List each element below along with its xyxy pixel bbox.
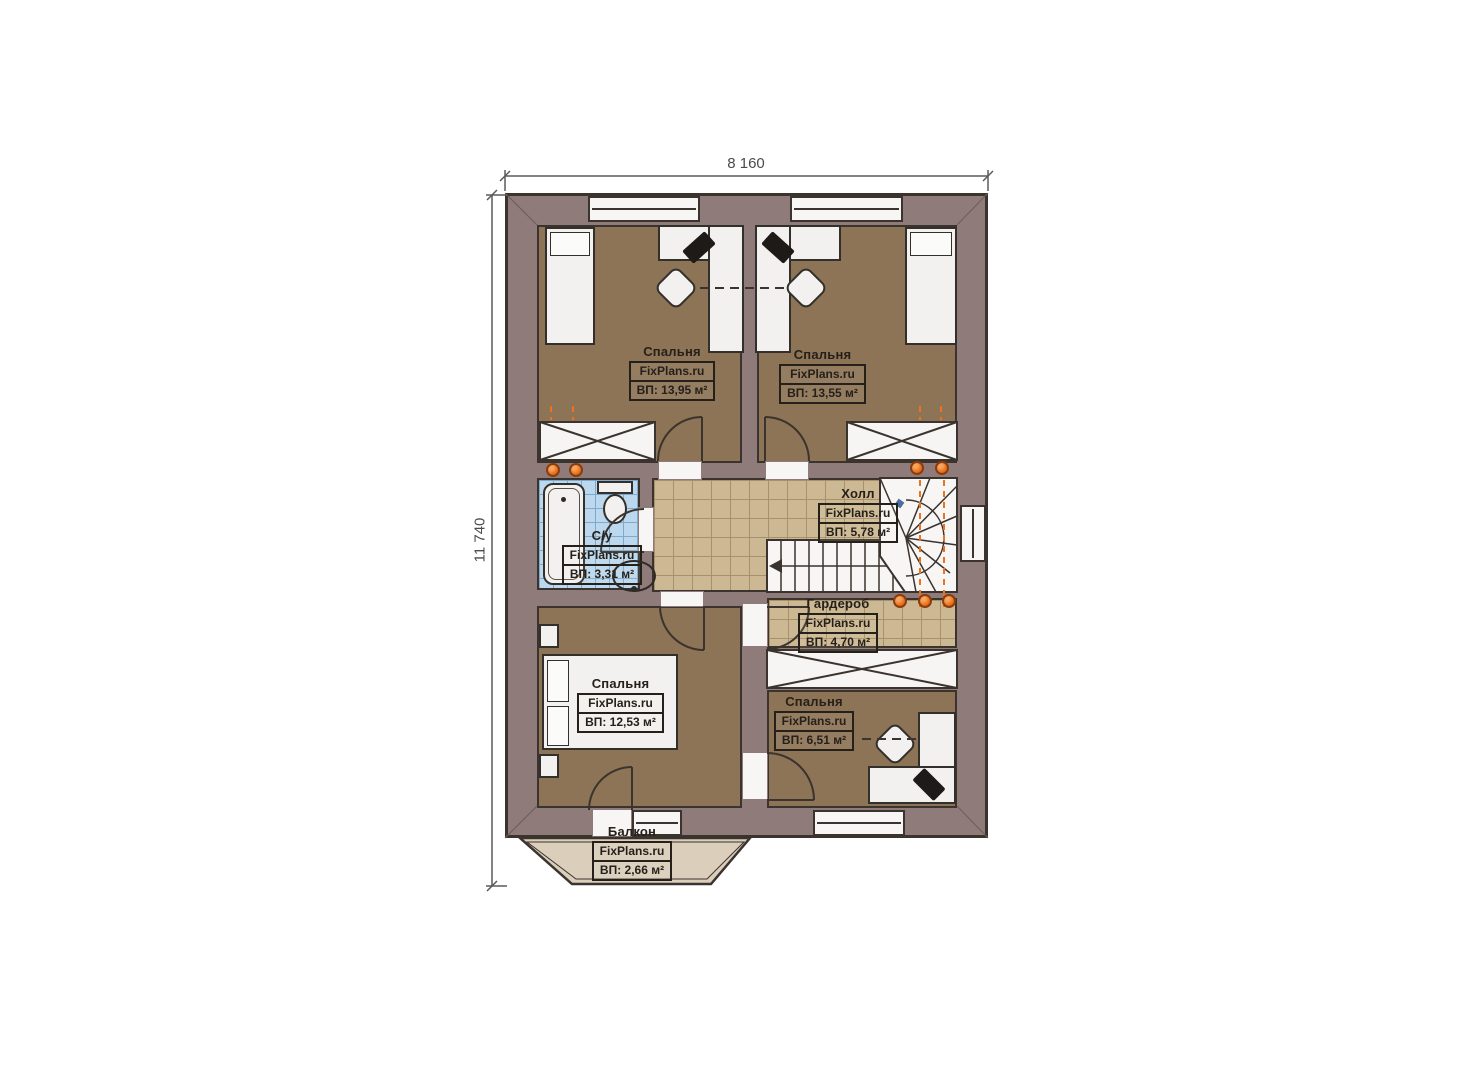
brand-watermark: FixPlans.ru bbox=[631, 363, 714, 380]
brand-watermark: FixPlans.ru bbox=[776, 713, 853, 730]
door-gap-bedroom-top-right bbox=[765, 461, 809, 480]
room-area: ВП: 2,66 м² bbox=[594, 860, 671, 879]
ceiling-lamp-icon bbox=[918, 594, 932, 608]
window-bottom-right bbox=[813, 810, 905, 836]
brand-watermark: FixPlans.ru bbox=[820, 505, 897, 522]
bed-pillow bbox=[547, 660, 569, 702]
label-bedroom-top-right: Спальня FixPlans.ru ВП: 13,55 м² bbox=[760, 347, 885, 404]
door-gap-bedroom-bottom-left bbox=[660, 591, 704, 607]
room-name: Спальня bbox=[760, 347, 885, 362]
brand-watermark: FixPlans.ru bbox=[579, 695, 662, 712]
toilet-icon bbox=[603, 494, 627, 524]
brand-watermark: FixPlans.ru bbox=[800, 615, 877, 632]
nightstand bbox=[539, 754, 559, 778]
desk bbox=[868, 766, 956, 804]
room-name: Гардероб bbox=[793, 596, 883, 611]
room-name: Балкон bbox=[582, 824, 682, 839]
door-gap-bedroom-top-left bbox=[658, 461, 702, 480]
ceiling-lamp-icon bbox=[910, 461, 924, 475]
ceiling-lamp-icon bbox=[935, 461, 949, 475]
ceiling-lamp-icon bbox=[569, 463, 583, 477]
bed-pillow bbox=[550, 232, 590, 256]
label-wardrobe: Гардероб FixPlans.ru ВП: 4,70 м² bbox=[793, 596, 883, 653]
label-bedroom-bottom-right: Спальня FixPlans.ru ВП: 6,51 м² bbox=[766, 694, 862, 751]
room-area: ВП: 13,55 м² bbox=[781, 383, 864, 402]
brand-watermark: FixPlans.ru bbox=[594, 843, 671, 860]
room-name: С/у bbox=[552, 528, 652, 543]
room-area: ВП: 6,51 м² bbox=[776, 730, 853, 749]
room-area: ВП: 4,70 м² bbox=[800, 632, 877, 651]
bed-pillow bbox=[547, 706, 569, 746]
door-gap-bedroom-bottom-right bbox=[742, 752, 768, 800]
room-area: ВП: 13,95 м² bbox=[631, 380, 714, 399]
window-top-right bbox=[790, 196, 903, 222]
floor-plan: 8 160 11 740 Спальня FixPlans.ru ВП: 13,… bbox=[0, 0, 1473, 1080]
toilet-tank bbox=[597, 481, 633, 494]
bathtub-drain bbox=[561, 497, 566, 502]
label-bedroom-top-left: Спальня FixPlans.ru ВП: 13,95 м² bbox=[607, 344, 737, 401]
room-area: ВП: 12,53 м² bbox=[579, 712, 662, 731]
ceiling-lamp-icon bbox=[942, 594, 956, 608]
room-name: Спальня bbox=[766, 694, 862, 709]
dimension-height-label: 11 740 bbox=[472, 518, 489, 563]
label-bedroom-bottom-left: Спальня FixPlans.ru ВП: 12,53 м² bbox=[568, 676, 673, 733]
label-hall: Холл FixPlans.ru ВП: 5,78 м² bbox=[808, 486, 908, 543]
room-area: ВП: 5,78 м² bbox=[820, 522, 897, 541]
nightstand bbox=[539, 624, 559, 648]
ceiling-lamp-icon bbox=[546, 463, 560, 477]
bed-pillow bbox=[910, 232, 952, 256]
room-name: Спальня bbox=[568, 676, 673, 691]
window-top-left bbox=[588, 196, 700, 222]
dimension-width-label: 8 160 bbox=[727, 155, 765, 172]
door-gap-wardrobe bbox=[742, 603, 768, 647]
room-name: Холл bbox=[808, 486, 908, 501]
room-name: Спальня bbox=[607, 344, 737, 359]
ceiling-lamp-icon bbox=[893, 594, 907, 608]
window-right-stairs bbox=[960, 505, 986, 562]
brand-watermark: FixPlans.ru bbox=[781, 366, 864, 383]
sink-tap bbox=[631, 586, 637, 592]
label-balcony: Балкон FixPlans.ru ВП: 2,66 м² bbox=[582, 824, 682, 881]
